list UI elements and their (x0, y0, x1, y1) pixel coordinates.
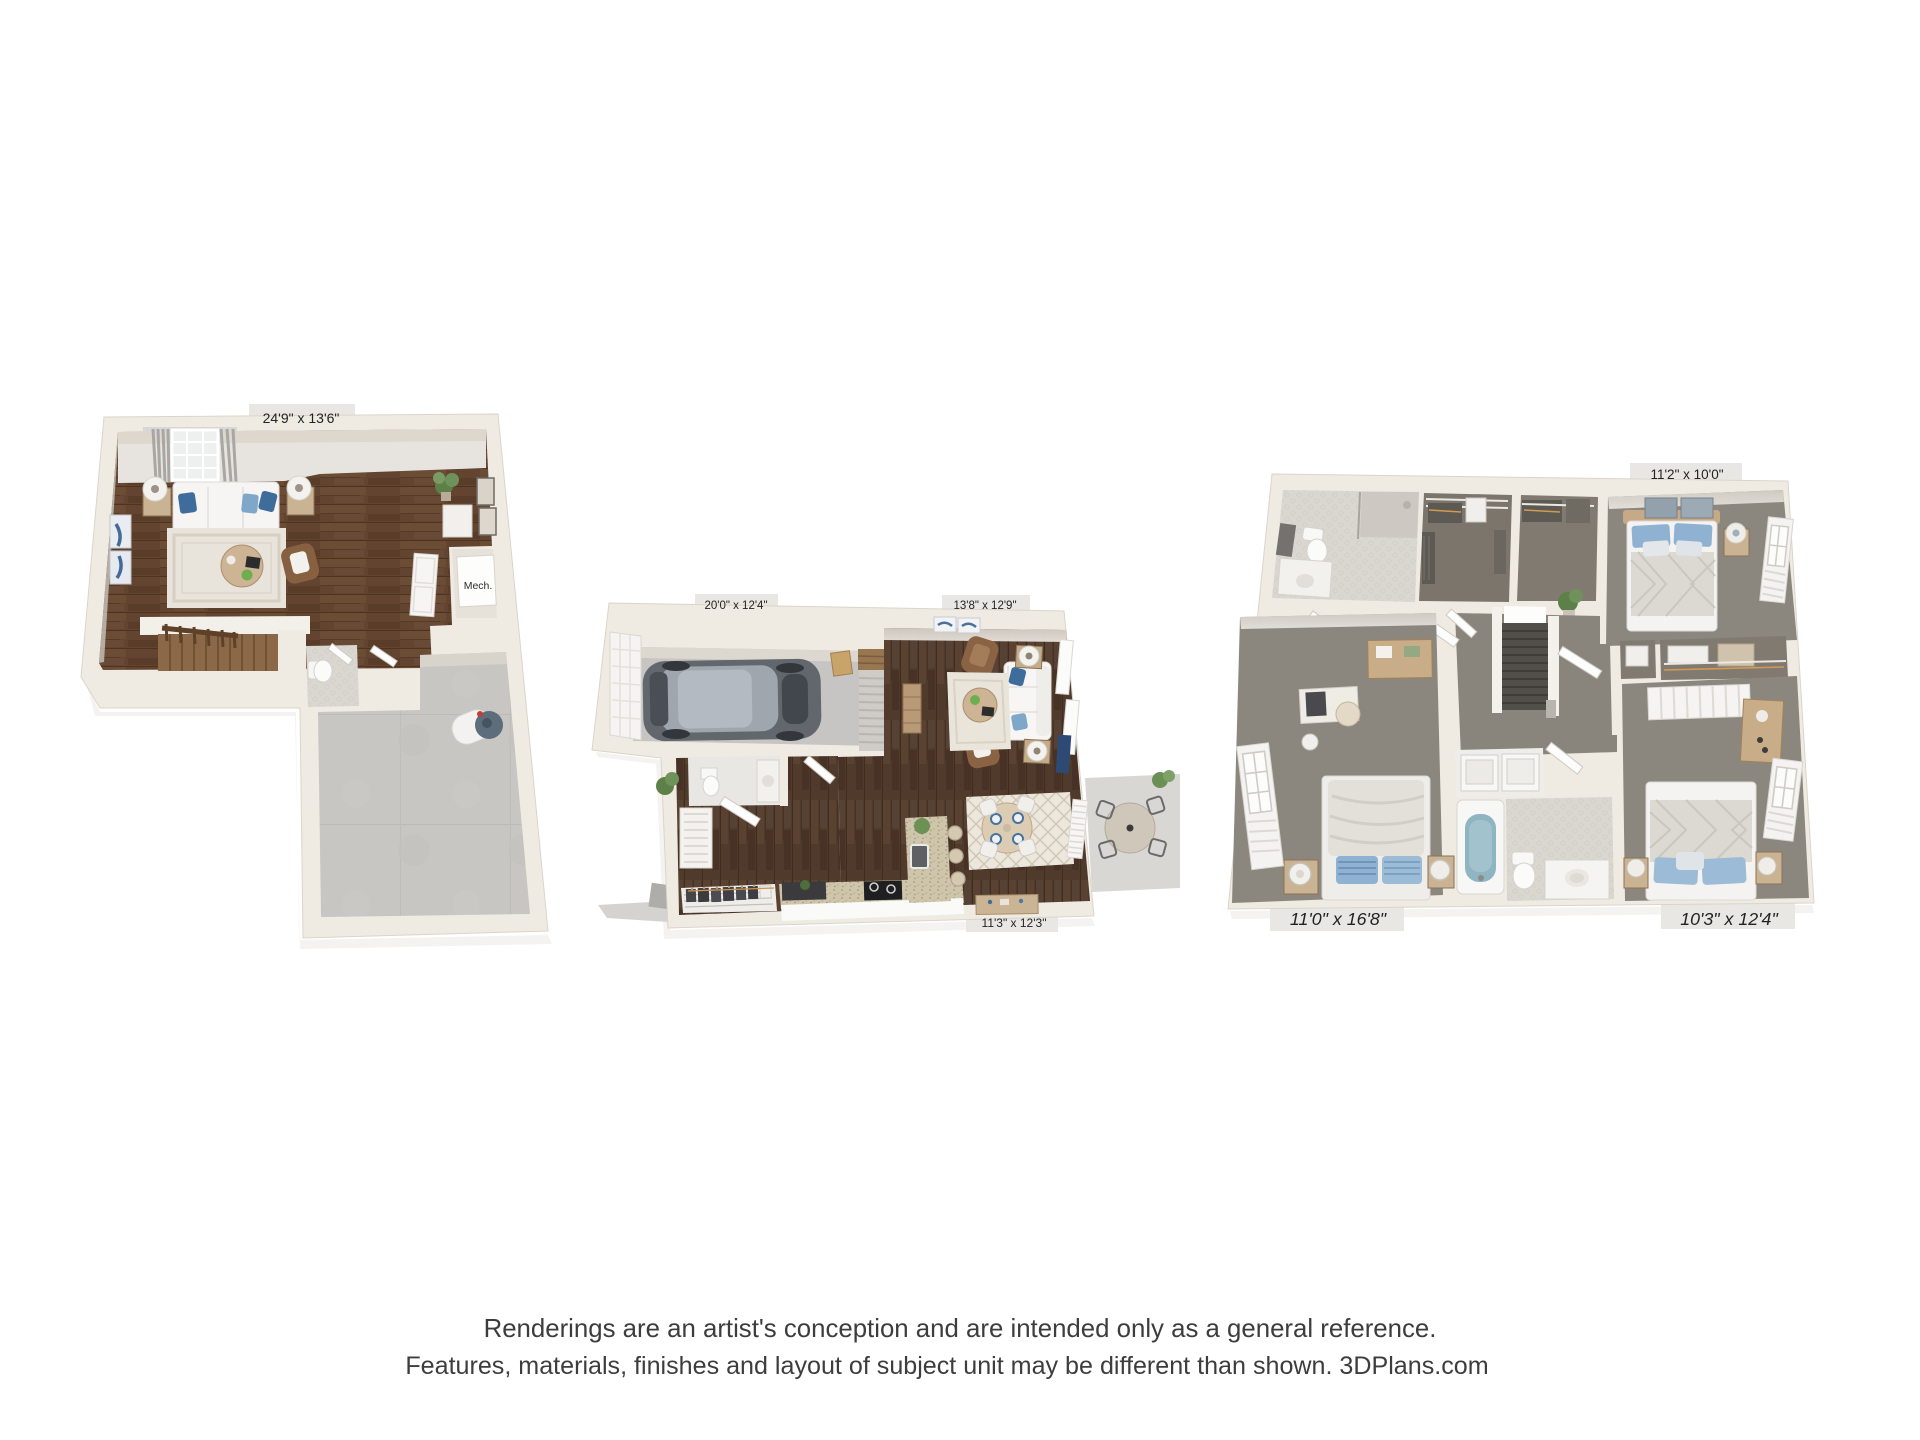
svg-text:11'2" x 10'0": 11'2" x 10'0" (1650, 467, 1723, 482)
svg-text:24'9" x 13'6": 24'9" x 13'6" (263, 410, 340, 426)
svg-text:11'0" x 16'8": 11'0" x 16'8" (1290, 909, 1387, 929)
svg-text:Renderings are an artist's con: Renderings are an artist's conception an… (484, 1315, 1437, 1343)
svg-text:13'8" x 12'9": 13'8" x 12'9" (953, 600, 1016, 612)
svg-text:Mech.: Mech. (464, 580, 493, 592)
svg-text:10'3" x 12'4": 10'3" x 12'4" (1680, 909, 1778, 929)
svg-text:Features, materials, finishes: Features, materials, finishes and layout… (405, 1352, 1488, 1380)
svg-text:20'0" x 12'4": 20'0" x 12'4" (704, 600, 767, 612)
svg-text:11'3" x 12'3": 11'3" x 12'3" (982, 916, 1047, 930)
